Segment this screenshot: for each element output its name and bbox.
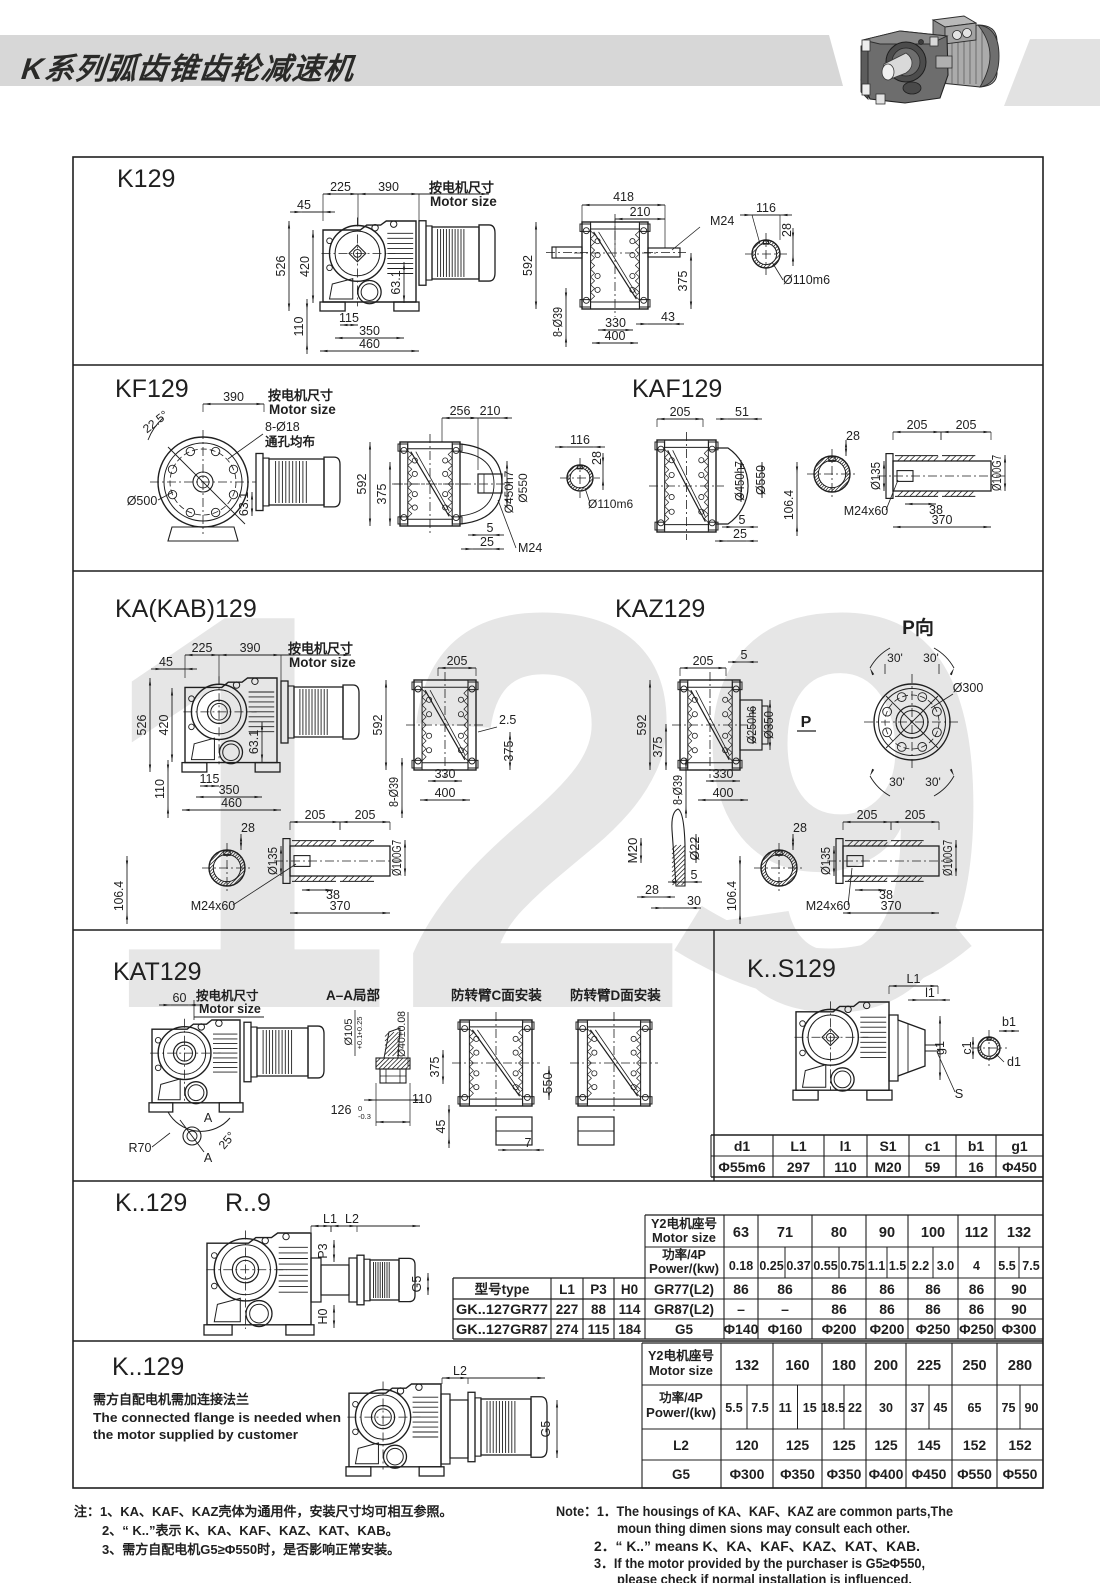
svg-text:550: 550 [541, 1073, 555, 1094]
svg-text:592: 592 [635, 715, 649, 736]
svg-text:3、需方自配电机G5≥Φ550时，是否影响正常安装。: 3、需方自配电机G5≥Φ550时，是否影响正常安装。 [102, 1542, 400, 1557]
svg-text:R..9: R..9 [225, 1189, 271, 1217]
svg-text:型号type: 型号type [475, 1281, 530, 1297]
svg-text:375: 375 [676, 271, 690, 292]
svg-text:K129: K129 [117, 165, 175, 193]
svg-text:390: 390 [378, 180, 399, 194]
svg-text:P3: P3 [590, 1282, 607, 1297]
svg-text:Power/(kw): Power/(kw) [646, 1405, 716, 1420]
svg-text:Ø450h7: Ø450h7 [733, 461, 747, 501]
svg-text:+0.25: +0.25 [355, 1017, 364, 1036]
svg-text:45: 45 [434, 1120, 448, 1134]
svg-text:H0: H0 [621, 1282, 638, 1297]
svg-text:按电机尺寸: 按电机尺寸 [288, 641, 353, 656]
svg-text:S1: S1 [879, 1138, 896, 1154]
svg-text:A: A [204, 1111, 213, 1125]
svg-text:Φ300: Φ300 [1002, 1321, 1037, 1337]
svg-text:-0.3: -0.3 [358, 1112, 371, 1121]
svg-text:Φ250: Φ250 [959, 1321, 994, 1337]
svg-text:110: 110 [834, 1159, 857, 1175]
svg-text:375: 375 [428, 1057, 442, 1078]
svg-text:152: 152 [963, 1437, 987, 1453]
svg-text:Power/(kw): Power/(kw) [649, 1261, 719, 1276]
svg-text:2.5: 2.5 [499, 713, 516, 727]
svg-text:205: 205 [670, 405, 691, 419]
svg-text:250: 250 [962, 1358, 986, 1374]
svg-text:180: 180 [832, 1358, 856, 1374]
svg-text:184: 184 [618, 1322, 641, 1337]
svg-text:100: 100 [921, 1225, 945, 1241]
svg-text:132: 132 [1007, 1225, 1031, 1241]
svg-text:592: 592 [521, 255, 535, 276]
svg-text:30: 30 [879, 1401, 893, 1415]
svg-text:Motor size: Motor size [649, 1363, 713, 1378]
svg-text:225: 225 [330, 180, 351, 194]
svg-text:28: 28 [846, 429, 860, 443]
svg-text:Ø40±0.08: Ø40±0.08 [396, 1011, 408, 1057]
svg-text:0.18: 0.18 [729, 1259, 753, 1273]
svg-text:86: 86 [831, 1301, 847, 1317]
svg-text:M24: M24 [710, 214, 734, 228]
svg-text:116: 116 [570, 433, 590, 447]
svg-text:80: 80 [831, 1225, 847, 1241]
svg-text:256: 256 [450, 404, 471, 418]
svg-text:Ø110m6: Ø110m6 [783, 273, 830, 287]
svg-text:b1: b1 [1002, 1015, 1016, 1029]
svg-text:7.5: 7.5 [1022, 1259, 1039, 1273]
svg-text:the motor supplied by customer: the motor supplied by customer [93, 1427, 298, 1442]
svg-text:Φ200: Φ200 [822, 1321, 857, 1337]
svg-text:L2: L2 [345, 1212, 359, 1226]
svg-text:460: 460 [221, 796, 242, 810]
svg-text:225: 225 [192, 641, 213, 655]
svg-text:86: 86 [925, 1301, 941, 1317]
svg-text:420: 420 [298, 256, 312, 277]
svg-text:370: 370 [881, 899, 902, 913]
svg-text:86: 86 [879, 1301, 895, 1317]
svg-text:G5: G5 [539, 1421, 553, 1438]
svg-text:GK..127GR77: GK..127GR77 [456, 1302, 548, 1317]
svg-text:16: 16 [968, 1159, 984, 1175]
svg-text:400: 400 [713, 786, 734, 800]
svg-text:M20: M20 [626, 837, 640, 863]
svg-text:28: 28 [590, 451, 604, 465]
svg-text:370: 370 [932, 513, 953, 527]
svg-text:37: 37 [911, 1401, 925, 1415]
svg-text:moun thing dimen sions may con: moun thing dimen sions may consult each … [617, 1521, 910, 1536]
svg-text:592: 592 [371, 715, 385, 736]
svg-text:160: 160 [785, 1358, 809, 1374]
svg-text:L1: L1 [790, 1138, 807, 1154]
svg-text:22.5°: 22.5° [140, 408, 171, 436]
svg-text:1.5: 1.5 [889, 1259, 906, 1273]
svg-text:390: 390 [223, 390, 244, 404]
svg-text:11: 11 [779, 1401, 792, 1415]
svg-text:d1: d1 [1007, 1055, 1021, 1069]
svg-text:M24x60: M24x60 [191, 899, 236, 913]
svg-text:防转臂C面安装: 防转臂C面安装 [451, 987, 542, 1003]
svg-text:390: 390 [240, 641, 261, 655]
svg-text:30': 30' [923, 651, 939, 665]
svg-text:116: 116 [756, 201, 776, 215]
svg-text:Motor size: Motor size [430, 194, 497, 209]
svg-text:KAT129: KAT129 [113, 958, 201, 986]
svg-text:需方自配电机需加连接法兰: 需方自配电机需加连接法兰 [93, 1392, 249, 1407]
svg-text:K..S129: K..S129 [747, 955, 836, 983]
svg-text:Φ450: Φ450 [1002, 1159, 1037, 1175]
svg-text:145: 145 [917, 1437, 941, 1453]
svg-text:5: 5 [741, 648, 748, 662]
svg-text:5.5: 5.5 [998, 1259, 1015, 1273]
svg-text:592: 592 [355, 474, 369, 495]
svg-text:–: – [781, 1301, 789, 1317]
svg-text:–: – [737, 1301, 745, 1317]
svg-text:0.55: 0.55 [813, 1259, 837, 1273]
svg-text:按电机尺寸: 按电机尺寸 [196, 988, 259, 1003]
svg-text:5: 5 [487, 521, 494, 535]
svg-text:125: 125 [832, 1437, 856, 1453]
svg-text:按电机尺寸: 按电机尺寸 [268, 388, 333, 403]
svg-text:通孔均布: 通孔均布 [265, 434, 316, 449]
svg-text:Motor size: Motor size [269, 402, 336, 417]
svg-text:15: 15 [803, 1401, 817, 1415]
svg-text:115: 115 [339, 311, 359, 325]
svg-text:28: 28 [645, 883, 659, 897]
svg-text:Ø100G7: Ø100G7 [941, 840, 955, 876]
svg-text:Φ55m6: Φ55m6 [718, 1159, 766, 1175]
svg-text:GK..127GR87: GK..127GR87 [456, 1322, 548, 1337]
svg-text:110: 110 [412, 1092, 432, 1106]
svg-text:KA(KAB)129: KA(KAB)129 [115, 595, 257, 623]
svg-text:460: 460 [359, 337, 380, 351]
svg-text:l1: l1 [925, 986, 935, 1000]
svg-text:KF129: KF129 [115, 375, 189, 403]
svg-text:8-Ø18: 8-Ø18 [265, 420, 300, 434]
svg-text:M24: M24 [518, 541, 542, 555]
svg-text:126: 126 [331, 1103, 352, 1117]
svg-text:400: 400 [435, 786, 456, 800]
svg-text:功率/4P: 功率/4P [659, 1390, 703, 1405]
svg-text:c1: c1 [925, 1138, 941, 1154]
svg-text:28: 28 [780, 223, 794, 237]
svg-text:28: 28 [793, 821, 807, 835]
svg-text:90: 90 [1011, 1301, 1027, 1317]
svg-text:63.1: 63.1 [237, 492, 251, 516]
svg-text:R70: R70 [129, 1141, 152, 1155]
svg-text:370: 370 [330, 899, 351, 913]
svg-text:45: 45 [934, 1401, 948, 1415]
svg-text:75: 75 [1002, 1401, 1016, 1415]
svg-text:205: 205 [305, 808, 326, 822]
svg-text:Ø350: Ø350 [762, 711, 776, 739]
svg-text:205: 205 [905, 808, 926, 822]
svg-text:2、“ K..”表示 K、KA、KAF、KAZ、KAT、KA: 2、“ K..”表示 K、KA、KAF、KAZ、KAT、KAB。 [102, 1523, 399, 1538]
svg-text:90: 90 [879, 1225, 895, 1241]
svg-text:330: 330 [435, 767, 456, 781]
svg-text:K..129: K..129 [115, 1189, 187, 1217]
svg-text:please check if normal install: please check if normal installation is i… [617, 1572, 912, 1583]
svg-text:86: 86 [777, 1281, 793, 1297]
svg-text:Motor size: Motor size [199, 1002, 261, 1016]
svg-text:Ø100G7: Ø100G7 [990, 455, 1004, 491]
svg-text:0.25: 0.25 [759, 1259, 783, 1273]
svg-text:205: 205 [907, 418, 928, 432]
svg-text:86: 86 [969, 1281, 985, 1297]
svg-text:65: 65 [968, 1401, 982, 1415]
svg-text:8-Ø39: 8-Ø39 [387, 777, 401, 807]
svg-text:Φ450: Φ450 [912, 1466, 947, 1482]
svg-text:Φ400: Φ400 [869, 1466, 904, 1482]
svg-text:Ø450h7: Ø450h7 [502, 470, 516, 513]
svg-text:375: 375 [651, 737, 665, 758]
svg-text:110: 110 [292, 316, 306, 336]
svg-text:400: 400 [605, 329, 626, 343]
svg-text:功率/4P: 功率/4P [662, 1247, 706, 1262]
svg-text:90: 90 [1025, 1401, 1039, 1415]
svg-text:30': 30' [889, 775, 905, 789]
svg-text:Ø500: Ø500 [127, 494, 158, 508]
svg-text:A: A [204, 1151, 213, 1165]
svg-text:28: 28 [241, 821, 255, 835]
svg-text:L1: L1 [907, 972, 921, 986]
svg-text:106.4: 106.4 [112, 881, 126, 911]
svg-text:18.5: 18.5 [821, 1401, 845, 1415]
svg-text:Φ200: Φ200 [870, 1321, 905, 1337]
svg-text:Φ140: Φ140 [724, 1321, 759, 1337]
svg-text:45: 45 [159, 655, 173, 669]
svg-text:Motor size: Motor size [652, 1230, 716, 1245]
svg-text:M24x60: M24x60 [806, 899, 851, 913]
svg-text:S: S [955, 1086, 964, 1101]
svg-text:210: 210 [630, 205, 651, 219]
svg-text:Note：1．The housings of KA、KAF、: Note：1．The housings of KA、KAF、KAZ are co… [556, 1504, 953, 1519]
svg-text:30: 30 [687, 894, 701, 908]
svg-text:71: 71 [777, 1225, 793, 1241]
svg-text:g1: g1 [1011, 1138, 1028, 1154]
svg-text:1.1: 1.1 [868, 1259, 885, 1273]
svg-text:132: 132 [735, 1358, 759, 1374]
svg-text:526: 526 [135, 715, 149, 736]
svg-text:Φ350: Φ350 [827, 1466, 862, 1482]
svg-text:112: 112 [965, 1225, 988, 1241]
svg-text:210: 210 [480, 404, 501, 418]
svg-text:A–A局部: A–A局部 [326, 987, 381, 1003]
svg-text:M20: M20 [874, 1159, 901, 1175]
svg-text:280: 280 [1008, 1358, 1032, 1374]
svg-text:l1: l1 [840, 1138, 852, 1154]
svg-text:350: 350 [359, 324, 380, 338]
svg-text:200: 200 [874, 1358, 898, 1374]
svg-text:60: 60 [173, 991, 187, 1005]
svg-text:L2: L2 [673, 1438, 689, 1453]
svg-text:3．If the motor provided by the: 3．If the motor provided by the purchaser… [594, 1556, 925, 1571]
svg-text:420: 420 [157, 715, 171, 736]
svg-text:152: 152 [1008, 1437, 1032, 1453]
svg-text:115: 115 [200, 772, 220, 786]
svg-text:按电机尺寸: 按电机尺寸 [429, 180, 494, 195]
svg-text:120: 120 [735, 1437, 759, 1453]
svg-text:L1: L1 [323, 1212, 337, 1226]
svg-text:G5: G5 [672, 1467, 691, 1482]
svg-text:22: 22 [848, 1401, 862, 1415]
svg-text:106.4: 106.4 [782, 490, 796, 520]
svg-text:8-Ø39: 8-Ø39 [551, 307, 565, 337]
svg-text:2.2: 2.2 [912, 1259, 929, 1273]
svg-text:G5: G5 [675, 1322, 694, 1337]
svg-text:110: 110 [153, 779, 167, 799]
svg-text:330: 330 [713, 767, 734, 781]
svg-text:Ø135: Ø135 [819, 847, 833, 875]
svg-text:Φ250: Φ250 [916, 1321, 951, 1337]
svg-text:The connected flange is needed: The connected flange is needed when [93, 1410, 341, 1425]
svg-text:P: P [801, 714, 812, 731]
svg-text:25: 25 [480, 535, 494, 549]
svg-text:KAZ129: KAZ129 [615, 595, 705, 623]
svg-text:86: 86 [879, 1281, 895, 1297]
svg-text:63.1: 63.1 [247, 730, 261, 754]
svg-text:K..129: K..129 [112, 1353, 184, 1381]
svg-text:G5: G5 [410, 1276, 424, 1293]
svg-text:8-Ø39: 8-Ø39 [671, 775, 685, 805]
svg-text:P向: P向 [902, 616, 934, 639]
svg-text:330: 330 [605, 316, 626, 330]
svg-text:86: 86 [925, 1281, 941, 1297]
svg-text:Y2电机座号: Y2电机座号 [648, 1348, 714, 1363]
svg-text:Y2电机座号: Y2电机座号 [651, 1216, 717, 1231]
svg-text:c1: c1 [960, 1041, 974, 1054]
svg-text:Φ550: Φ550 [957, 1466, 992, 1482]
svg-text:205: 205 [857, 808, 878, 822]
svg-text:59: 59 [925, 1159, 941, 1175]
svg-text:Ø300: Ø300 [953, 681, 984, 695]
svg-text:L1: L1 [559, 1282, 575, 1297]
svg-text:Ø135: Ø135 [266, 847, 280, 875]
svg-text:51: 51 [735, 405, 749, 419]
svg-text:注：1、KA、KAF、KAZ壳体为通用件，安装尺寸均可相互参: 注：1、KA、KAF、KAZ壳体为通用件，安装尺寸均可相互参照。 [74, 1504, 452, 1519]
svg-text:b1: b1 [968, 1138, 985, 1154]
svg-text:GR77(L2): GR77(L2) [654, 1282, 714, 1297]
svg-text:297: 297 [787, 1159, 811, 1175]
svg-text:114: 114 [619, 1302, 641, 1317]
svg-text:KAF129: KAF129 [632, 375, 722, 403]
svg-text:GR87(L2): GR87(L2) [654, 1302, 714, 1317]
svg-text:63: 63 [733, 1225, 749, 1241]
svg-text:7: 7 [525, 1136, 532, 1150]
svg-text:L2: L2 [453, 1364, 467, 1378]
svg-text:H0: H0 [316, 1308, 330, 1324]
svg-text:Ø135: Ø135 [869, 462, 883, 490]
svg-text:5: 5 [691, 868, 698, 882]
svg-text:Φ300: Φ300 [730, 1466, 765, 1482]
svg-text:86: 86 [969, 1301, 985, 1317]
svg-text:350: 350 [219, 783, 240, 797]
svg-text:0.75: 0.75 [840, 1259, 864, 1273]
svg-text:274: 274 [556, 1322, 579, 1337]
svg-text:90: 90 [1011, 1281, 1027, 1297]
svg-text:4: 4 [973, 1259, 980, 1273]
svg-text:Ø22: Ø22 [688, 836, 702, 860]
svg-text:526: 526 [274, 256, 288, 277]
svg-text:375: 375 [375, 484, 389, 505]
svg-text:125: 125 [874, 1437, 898, 1453]
svg-text:227: 227 [556, 1302, 579, 1317]
svg-text:205: 205 [693, 654, 714, 668]
svg-text:Ø100G7: Ø100G7 [390, 840, 404, 876]
svg-text:86: 86 [733, 1281, 749, 1297]
svg-text:Motor size: Motor size [289, 655, 356, 670]
svg-text:88: 88 [591, 1302, 607, 1317]
svg-text:Φ350: Φ350 [780, 1466, 815, 1482]
svg-text:205: 205 [447, 654, 468, 668]
svg-text:7.5: 7.5 [751, 1401, 768, 1415]
svg-text:25°: 25° [216, 1129, 239, 1152]
svg-text:Φ550: Φ550 [1003, 1466, 1038, 1482]
svg-text:Φ160: Φ160 [768, 1321, 803, 1337]
svg-text:418: 418 [613, 190, 634, 204]
svg-text:Ø105: Ø105 [343, 1019, 355, 1046]
svg-text:d1: d1 [734, 1138, 751, 1154]
svg-text:225: 225 [917, 1358, 941, 1374]
svg-text:Ø550: Ø550 [516, 473, 530, 503]
svg-text:Ø550: Ø550 [754, 465, 768, 495]
svg-text:375: 375 [502, 741, 516, 762]
svg-text:P3: P3 [316, 1243, 330, 1258]
svg-text:43: 43 [661, 310, 675, 324]
svg-text:3.0: 3.0 [937, 1259, 954, 1273]
svg-text:86: 86 [831, 1281, 847, 1297]
svg-text:Ø250h6: Ø250h6 [745, 706, 759, 744]
svg-text:5.5: 5.5 [725, 1401, 742, 1415]
svg-text:30': 30' [925, 775, 941, 789]
svg-text:g1: g1 [933, 1041, 947, 1055]
svg-text:45: 45 [297, 198, 311, 212]
svg-text:205: 205 [956, 418, 977, 432]
svg-text:25: 25 [733, 527, 747, 541]
svg-text:+0.1: +0.1 [355, 1035, 364, 1050]
svg-text:125: 125 [786, 1437, 810, 1453]
svg-text:115: 115 [588, 1322, 610, 1337]
svg-text:M24x60: M24x60 [844, 504, 889, 518]
svg-text:106.4: 106.4 [725, 881, 739, 911]
svg-text:2．“ K..” means K、KA、KAF、KAZ、K: 2．“ K..” means K、KA、KAF、KAZ、KAT、KAB. [594, 1539, 920, 1554]
svg-text:防转臂D面安装: 防转臂D面安装 [570, 987, 661, 1003]
svg-text:205: 205 [355, 808, 376, 822]
svg-text:63.1: 63.1 [389, 270, 403, 294]
svg-text:Ø110m6: Ø110m6 [588, 497, 633, 511]
svg-text:30': 30' [887, 651, 903, 665]
svg-text:5: 5 [739, 513, 746, 527]
svg-text:0.37: 0.37 [786, 1259, 810, 1273]
